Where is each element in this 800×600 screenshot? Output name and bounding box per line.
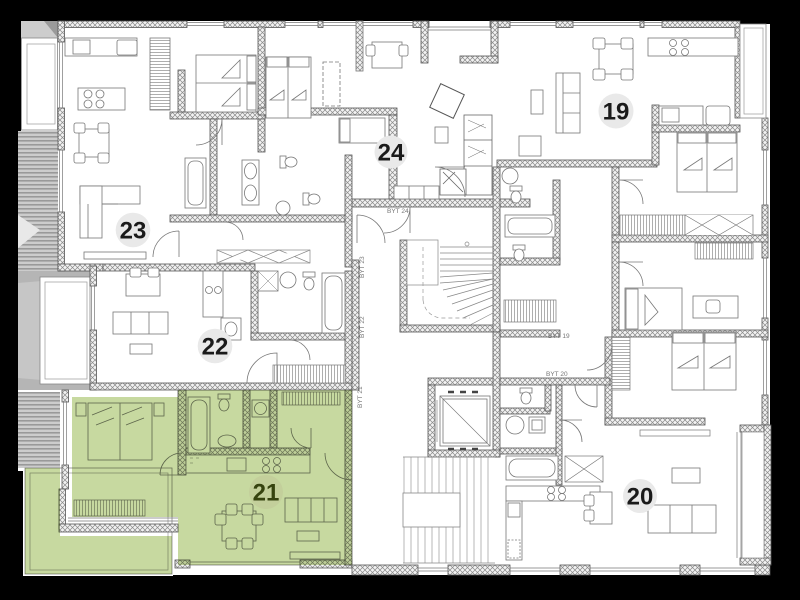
svg-text:BYT 22: BYT 22 xyxy=(359,316,366,338)
svg-text:21: 21 xyxy=(253,480,280,507)
svg-text:24: 24 xyxy=(378,140,405,167)
svg-text:BYT 23: BYT 23 xyxy=(359,256,366,278)
svg-text:19: 19 xyxy=(603,99,630,126)
svg-text:BYT 20: BYT 20 xyxy=(546,371,568,378)
svg-text:23: 23 xyxy=(120,218,147,245)
svg-text:BYT 24: BYT 24 xyxy=(387,208,409,215)
svg-text:22: 22 xyxy=(202,334,229,361)
svg-text:20: 20 xyxy=(627,484,654,511)
svg-text:BYT 19: BYT 19 xyxy=(548,333,570,340)
svg-text:BYT 21: BYT 21 xyxy=(357,386,364,408)
